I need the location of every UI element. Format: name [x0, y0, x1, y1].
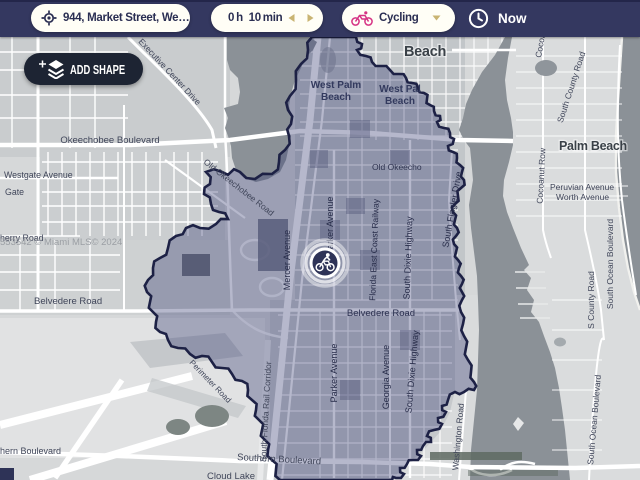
svg-text:Gate: Gate: [5, 187, 24, 197]
svg-text:West Palm: West Palm: [311, 80, 361, 91]
svg-text:Belvedere Road: Belvedere Road: [347, 308, 415, 319]
svg-text:Beach: Beach: [385, 96, 415, 107]
svg-text:hern Boulevard: hern Boulevard: [0, 446, 61, 456]
svg-text:West Pal: West Pal: [379, 84, 421, 95]
svg-text:Beach: Beach: [321, 92, 351, 103]
svg-text:Old Okeecho: Old Okeecho: [372, 162, 422, 172]
svg-text:Belvedere Road: Belvedere Road: [34, 296, 102, 307]
svg-text:Mercer Avenue: Mercer Avenue: [282, 230, 292, 290]
svg-text:Worth Avenue: Worth Avenue: [556, 192, 609, 202]
svg-text:Palm Beach: Palm Beach: [559, 139, 627, 153]
svg-text:Westgate Avenue: Westgate Avenue: [4, 170, 73, 180]
svg-text:South Ocean Boulevard: South Ocean Boulevard: [605, 219, 615, 310]
svg-text:Beach: Beach: [404, 44, 446, 60]
svg-text:S County Road: S County Road: [586, 271, 596, 329]
svg-text:Parker Avenue: Parker Avenue: [329, 344, 339, 403]
svg-text:Peruvian Avenue: Peruvian Avenue: [550, 182, 614, 192]
svg-text:Cloud Lake: Cloud Lake: [207, 471, 255, 480]
svg-text:Georgia Avenue: Georgia Avenue: [381, 345, 391, 409]
svg-text:Okeechobee Boulevard: Okeechobee Boulevard: [60, 135, 159, 146]
svg-text:553542 © Miami MLS© 2024: 553542 © Miami MLS© 2024: [0, 237, 122, 248]
